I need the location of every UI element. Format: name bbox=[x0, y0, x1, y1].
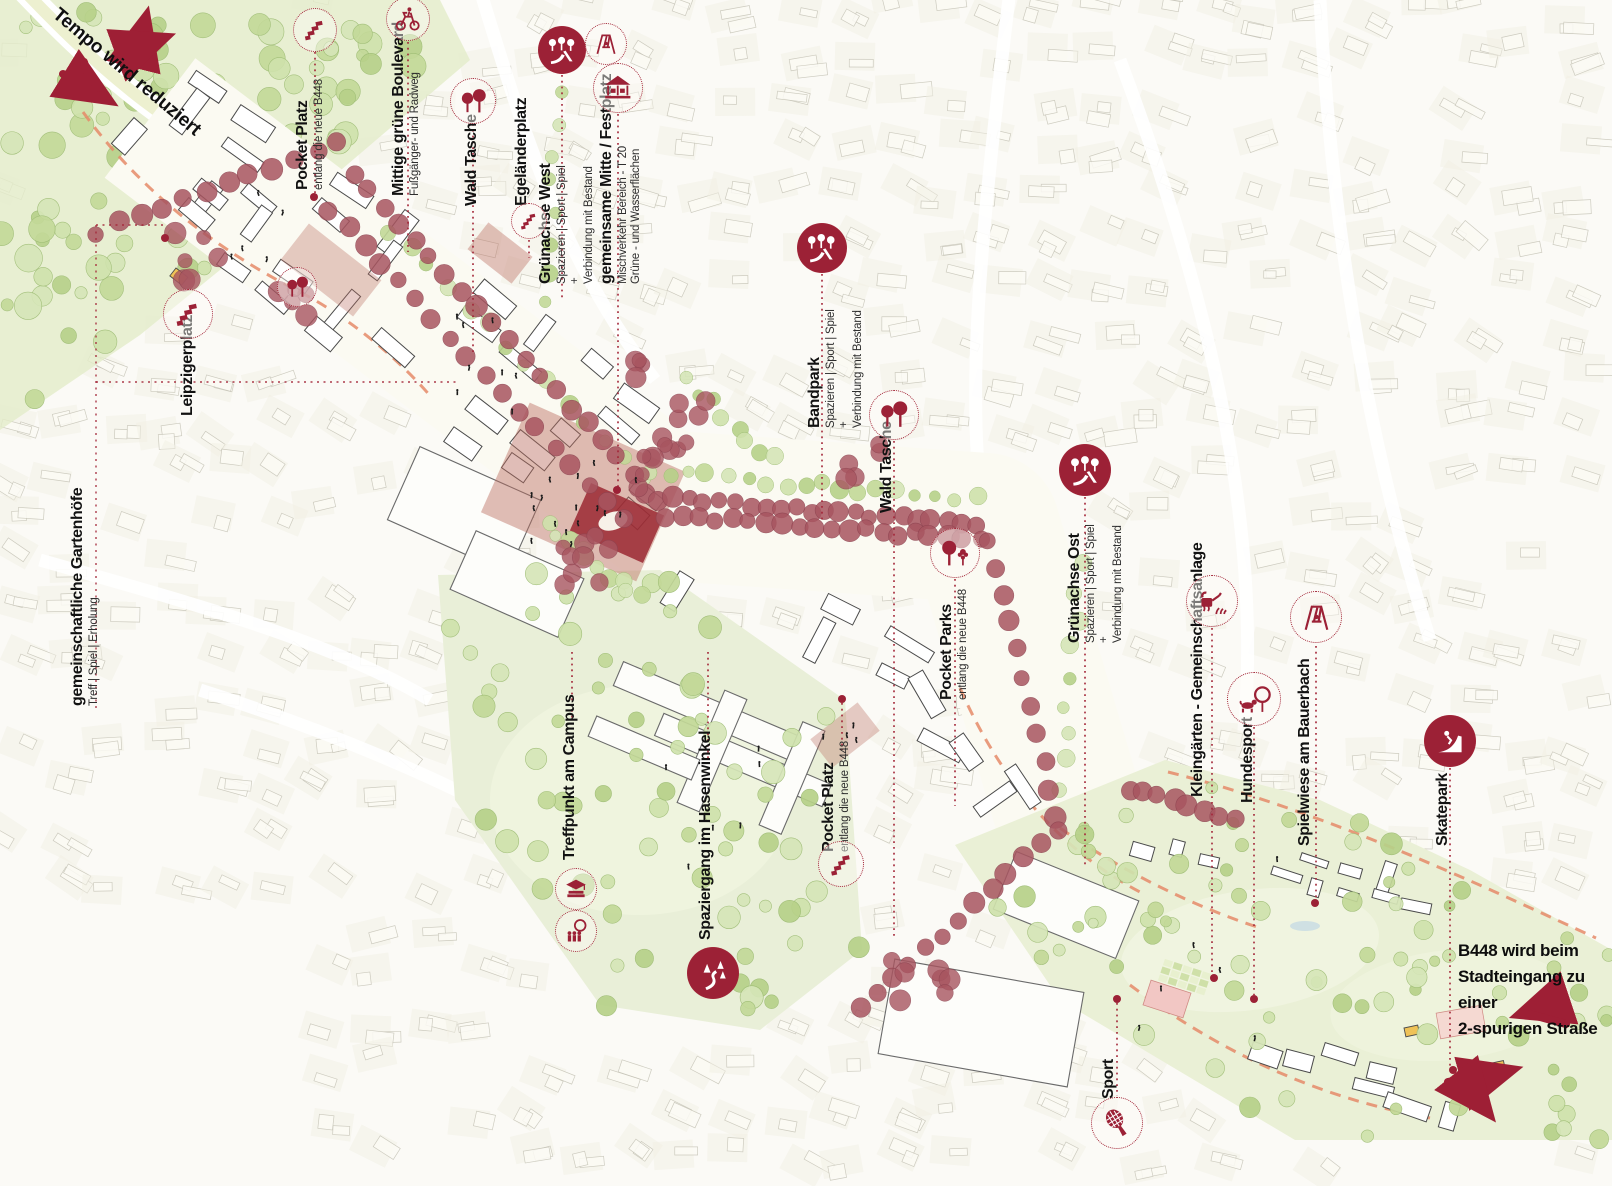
forest-walk-icon bbox=[687, 947, 739, 999]
steps-icon bbox=[511, 203, 547, 239]
masterplan-drawing bbox=[0, 0, 1612, 1186]
swing-icon bbox=[585, 23, 627, 65]
annotation-wald-tasche-nw: Wald Tasche bbox=[463, 114, 481, 206]
annotation-title: Egeländerplatz bbox=[513, 98, 531, 206]
annotation-pocket-platz-s: Pocket Platz entlang die neue B448 bbox=[820, 741, 851, 852]
trees-icon bbox=[277, 267, 317, 307]
playground-icon bbox=[538, 26, 586, 74]
annotation-title: Pocket Platz bbox=[294, 79, 312, 190]
annotation-subtitle: entlang die neue B448 bbox=[313, 79, 326, 190]
annotation-egelaenderplatz: Egeländerplatz bbox=[513, 98, 531, 206]
annotation-subtitle: + bbox=[1098, 524, 1111, 643]
education-icon bbox=[555, 868, 597, 910]
annotation-subtitle: Verbindung mit Bestand bbox=[852, 309, 865, 428]
annotation-subtitle: entlang die neue B448 bbox=[839, 741, 852, 852]
annotation-title: Pocket Parks bbox=[938, 589, 956, 700]
annotation-subtitle: Spazieren | Sport | Spiel bbox=[1085, 524, 1098, 643]
b448-note-line: 2-spurigen Straße bbox=[1458, 1016, 1612, 1042]
steps-icon bbox=[293, 8, 337, 52]
annotation-subtitle: Verbindung mit Bestand bbox=[583, 164, 596, 284]
park-trees-icon bbox=[930, 528, 980, 578]
annotation-hasenwinkel: Spaziergang im Hasenwinkel bbox=[697, 731, 715, 940]
annotation-subtitle: Fußgänger- und Radweg bbox=[409, 22, 422, 196]
annotation-title: Spielwiese am Bauerbach bbox=[1296, 659, 1314, 846]
annotation-title: Skatepark bbox=[1434, 773, 1452, 846]
steps-icon bbox=[163, 289, 213, 339]
racket-icon bbox=[1091, 1097, 1143, 1149]
annotation-subtitle: entlang die neue B448 bbox=[957, 589, 970, 700]
masterplan-stage: Tempo wird reduziert B448 wird beim Stad… bbox=[0, 0, 1612, 1186]
annotation-title: Bandpark bbox=[806, 309, 824, 428]
annotation-subtitle: Spazieren | Sport | Spiel bbox=[556, 164, 569, 284]
annotation-skatepark: Skatepark bbox=[1434, 773, 1452, 846]
annotation-pocket-parks: Pocket Parks entlang die neue B448 bbox=[938, 589, 969, 700]
annotation-subtitle: Spazieren | Sport | Spiel bbox=[825, 309, 838, 428]
playground-icon bbox=[1059, 444, 1111, 496]
annotation-title: Sport bbox=[1100, 1059, 1118, 1099]
annotation-pocket-platz-nw: Pocket Platz entlang die neue B448 bbox=[294, 79, 325, 190]
b448-note-line: B448 wird beim bbox=[1458, 938, 1612, 964]
carousel-icon bbox=[593, 63, 643, 113]
annotation-title: Treffpunkt am Campus bbox=[561, 695, 579, 860]
annotation-title: Grünachse Ost bbox=[1066, 524, 1084, 643]
annotation-bandpark: Bandpark Spazieren | Sport | Spiel + Ver… bbox=[806, 309, 865, 428]
annotation-mittige-boulevard: Mittige grüne Boulevard Fußgänger- und R… bbox=[390, 22, 421, 196]
skate-icon bbox=[1424, 715, 1476, 767]
annotation-gartenhoefe: gemeinschaftliche Gartenhöfe Treff | Spi… bbox=[69, 488, 100, 706]
annotation-subtitle: + bbox=[569, 164, 582, 284]
b448-note-line: Stadteingang zu einer bbox=[1458, 964, 1612, 1016]
trees-icon bbox=[869, 390, 919, 440]
annotation-title: Pocket Platz bbox=[820, 741, 838, 852]
annotation-title: Wald Tasche bbox=[463, 114, 481, 206]
annotation-subtitle: + bbox=[838, 309, 851, 428]
annotation-hundesport: Hundesport bbox=[1239, 717, 1257, 803]
dog-agility-icon bbox=[1227, 672, 1281, 726]
annotation-title: Spaziergang im Hasenwinkel bbox=[697, 731, 715, 940]
trees-icon bbox=[450, 78, 496, 124]
annotation-subtitle: Verbindung mit Bestand bbox=[1112, 524, 1125, 643]
annotation-sport: Sport bbox=[1100, 1059, 1118, 1099]
annotation-spielwiese: Spielwiese am Bauerbach bbox=[1296, 659, 1314, 846]
playground-icon bbox=[797, 223, 847, 273]
annotation-title: Hundesport bbox=[1239, 717, 1257, 803]
annotation-subtitle: Treff | Spiel | Erholung bbox=[88, 488, 101, 706]
annotation-title: gemeinschaftliche Gartenhöfe bbox=[69, 488, 87, 706]
garden-icon bbox=[1186, 575, 1238, 627]
annotation-gruenachse-ost: Grünachse Ost Spazieren | Sport | Spiel … bbox=[1066, 524, 1125, 643]
swing-icon bbox=[1290, 591, 1342, 643]
meeting-icon bbox=[555, 910, 597, 952]
steps-icon bbox=[818, 841, 864, 887]
annotation-title: Mittige grüne Boulevard bbox=[390, 22, 408, 196]
b448-note: B448 wird beim Stadteingang zu einer 2-s… bbox=[1458, 938, 1612, 1042]
annotation-treffpunkt-campus: Treffpunkt am Campus bbox=[561, 695, 579, 860]
